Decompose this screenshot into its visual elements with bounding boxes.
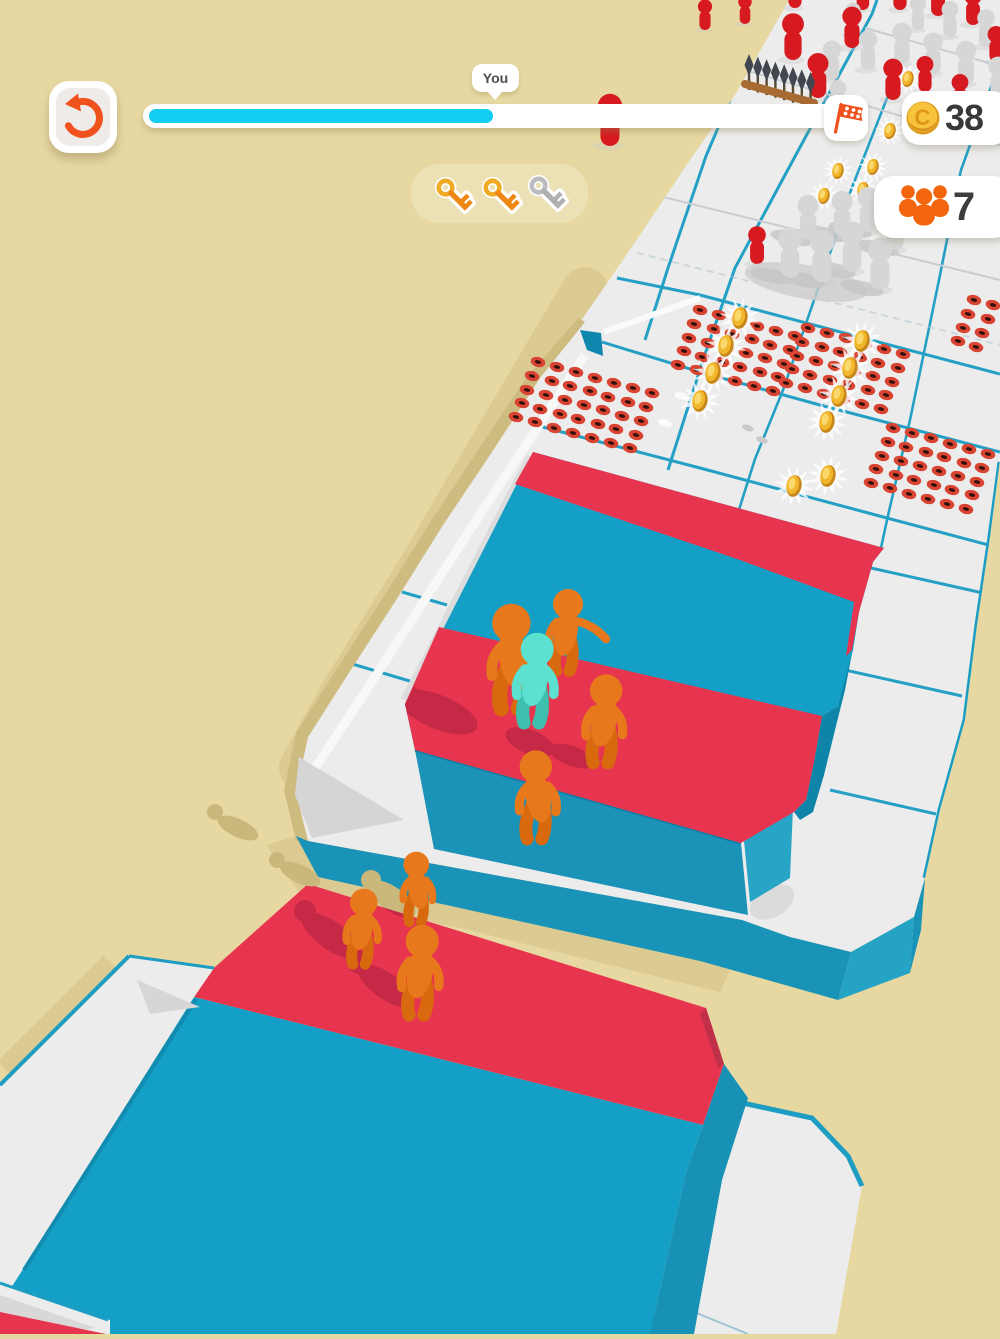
svg-text:C: C bbox=[915, 105, 931, 130]
